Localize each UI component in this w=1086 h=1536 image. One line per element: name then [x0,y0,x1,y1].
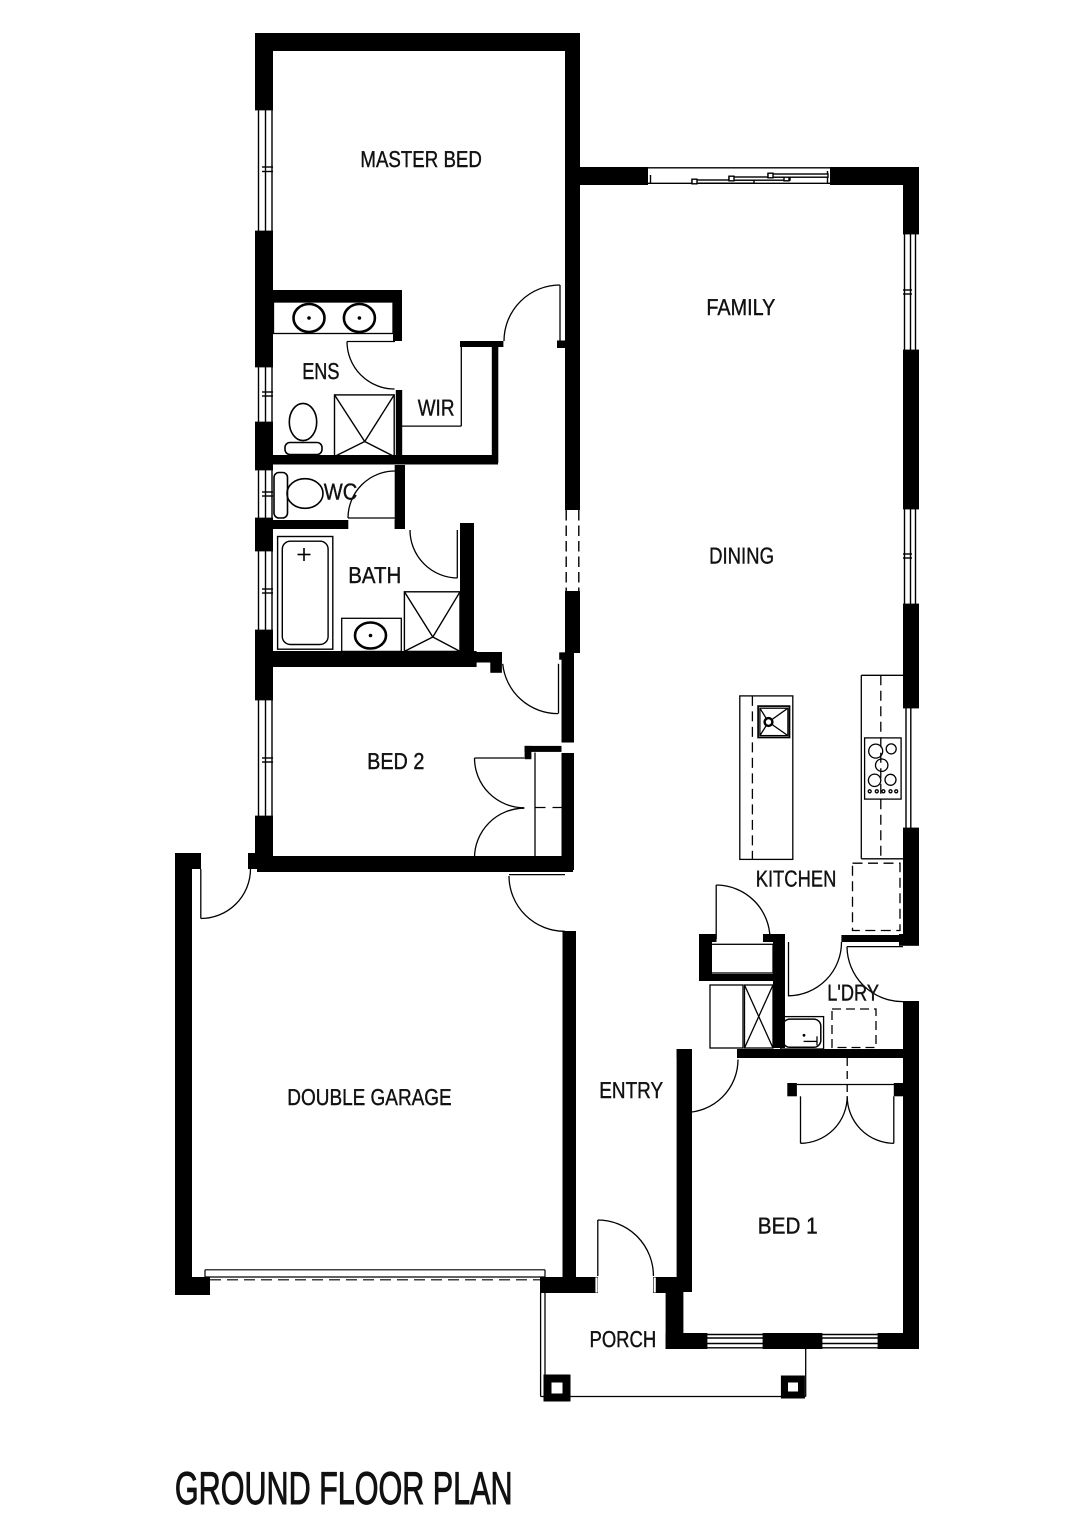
svg-text:MASTER BED: MASTER BED [360,146,482,172]
svg-text:L'DRY: L'DRY [827,980,879,1006]
svg-text:DINING: DINING [709,543,774,569]
svg-text:KITCHEN: KITCHEN [756,865,837,891]
svg-text:GROUND FLOOR PLAN: GROUND FLOOR PLAN [175,1462,513,1514]
svg-text:WIR: WIR [418,395,455,421]
svg-text:BATH: BATH [348,562,401,588]
svg-text:ENS: ENS [302,358,339,384]
svg-text:DOUBLE GARAGE: DOUBLE GARAGE [287,1084,451,1110]
svg-text:WC: WC [324,478,358,504]
svg-text:ENTRY: ENTRY [599,1077,663,1103]
svg-text:BED 2: BED 2 [367,748,424,774]
svg-text:FAMILY: FAMILY [706,294,775,320]
svg-text:PORCH: PORCH [590,1326,657,1352]
svg-text:BED 1: BED 1 [758,1212,818,1238]
